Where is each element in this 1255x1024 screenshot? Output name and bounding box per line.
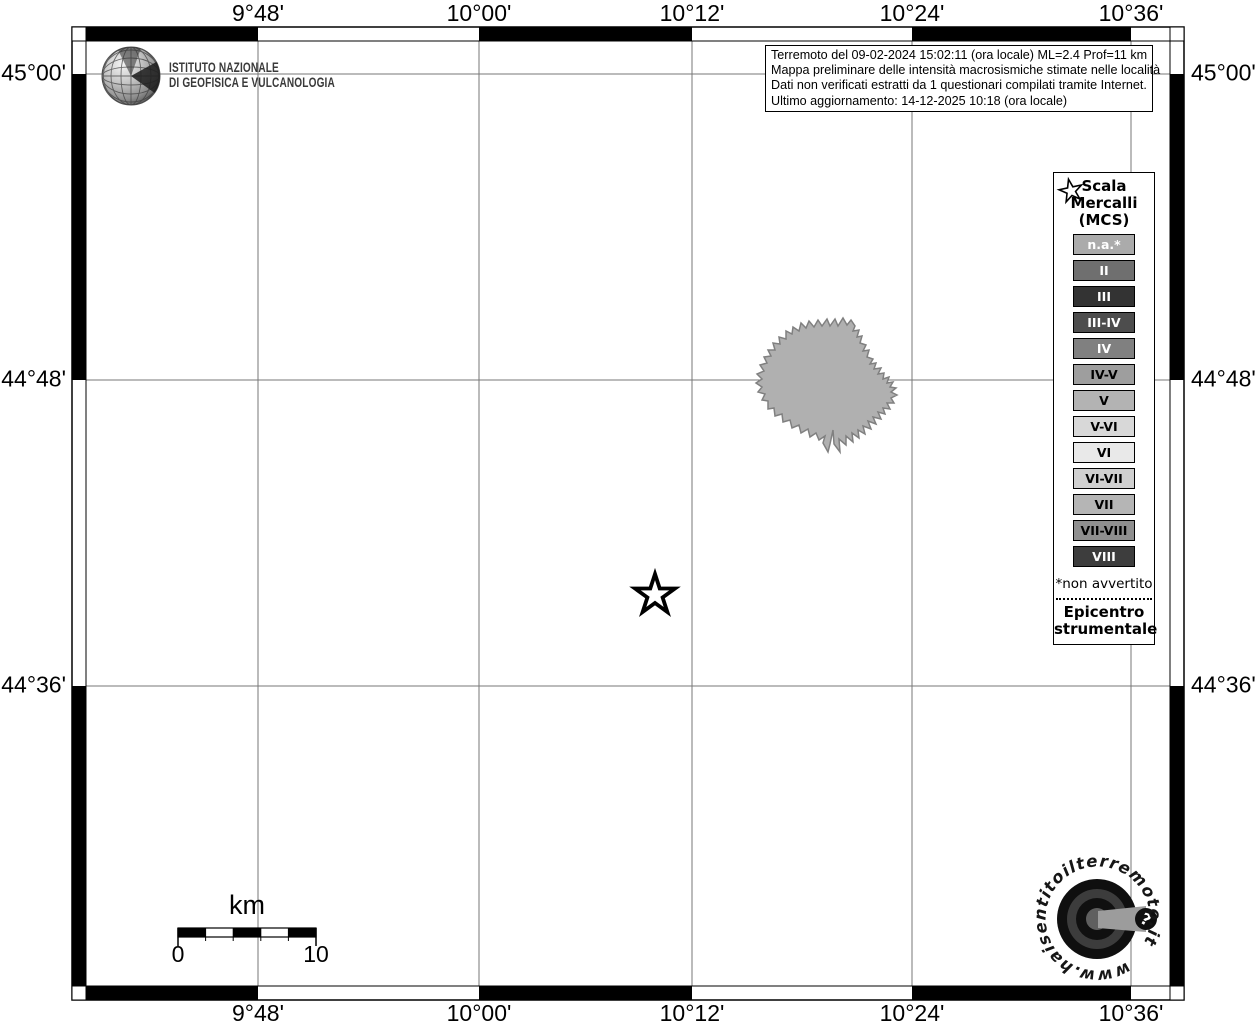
- legend-item-iii: III: [1073, 286, 1135, 307]
- lon-label-bottom-4: 10°24': [880, 1000, 945, 1024]
- earthquake-info-box: Terremoto del 09-02-2024 15:02:11 (ora l…: [765, 45, 1153, 112]
- legend-item-vii-viii: VII-VIII: [1073, 520, 1135, 541]
- legend-item-viii: VIII: [1073, 546, 1135, 567]
- legend-epicenter-line2: strumentale: [1054, 621, 1154, 638]
- lat-label-left-1: 45°00': [0, 59, 66, 86]
- frame-corner: [1170, 986, 1184, 1000]
- legend-item-v-vi: V-VI: [1073, 416, 1135, 437]
- legend-title-line3: (MCS): [1054, 212, 1154, 229]
- lon-label-top-5: 10°36': [1099, 0, 1164, 27]
- mercalli-legend: Scala Mercalli (MCS) n.a.* II III III-IV…: [1053, 172, 1155, 645]
- legend-item-vi: VI: [1073, 442, 1135, 463]
- scale-start-label: 0: [172, 941, 185, 967]
- lon-label-bottom-3: 10°12': [660, 1000, 725, 1024]
- lon-label-top-3: 10°12': [660, 0, 725, 27]
- legend-item-v: V: [1073, 390, 1135, 411]
- frame-corner: [72, 986, 86, 1000]
- lon-label-top-4: 10°24': [880, 0, 945, 27]
- legend-item-iii-iv: III-IV: [1073, 312, 1135, 333]
- frame-corner: [1170, 27, 1184, 41]
- frame-corner: [72, 27, 86, 41]
- lat-label-left-2: 44°48': [0, 365, 66, 392]
- lat-label-right-1: 45°00': [1191, 59, 1255, 86]
- legend-epicenter-line1: Epicentro: [1054, 604, 1154, 621]
- legend-item-na: n.a.*: [1073, 234, 1135, 255]
- lon-label-bottom-1: 9°48': [232, 1000, 284, 1024]
- info-line-updated: Ultimo aggiornamento: 14-12-2025 10:18 (…: [771, 94, 1147, 109]
- scale-bar: km 0 10: [172, 890, 329, 967]
- municipality-polygon: [756, 318, 897, 452]
- lon-label-top-2: 10°00': [447, 0, 512, 27]
- epicenter-star-icon: [635, 574, 675, 612]
- lon-label-bottom-5: 10°36': [1099, 1000, 1164, 1024]
- lat-label-right-2: 44°48': [1191, 365, 1255, 392]
- ingv-wordmark-line2: DI GEOFISICA E VULCANOLOGIA: [169, 75, 335, 90]
- scale-unit-label: km: [229, 890, 265, 920]
- ingv-wordmark: ISTITUTO NAZIONALE DI GEOFISICA E VULCAN…: [169, 60, 335, 89]
- legend-epicenter-label: Epicentro strumentale: [1054, 604, 1154, 638]
- legend-item-ii: II: [1073, 260, 1135, 281]
- legend-item-iv-v: IV-V: [1073, 364, 1135, 385]
- legend-item-iv: IV: [1073, 338, 1135, 359]
- lon-label-top-1: 9°48': [232, 0, 284, 27]
- ingv-globe-icon: [102, 47, 162, 105]
- graticule: [86, 41, 1170, 986]
- lat-label-right-3: 44°36': [1191, 671, 1255, 698]
- ingv-wordmark-line1: ISTITUTO NAZIONALE: [169, 60, 335, 75]
- legend-separator: [1056, 598, 1152, 600]
- legend-item-vii: VII: [1073, 494, 1135, 515]
- haisentito-logo: ? www.haisentitoilterremoto.it: [1030, 851, 1164, 986]
- info-line-map: Mappa preliminare delle intensità macros…: [771, 63, 1147, 78]
- legend-footnote: *non avvertito: [1054, 576, 1154, 592]
- lat-label-left-3: 44°36': [0, 671, 66, 698]
- scale-end-label: 10: [303, 941, 329, 967]
- info-line-data: Dati non verificati estratti da 1 questi…: [771, 78, 1147, 93]
- map-frame: [72, 27, 1184, 1000]
- lon-label-bottom-2: 10°00': [447, 1000, 512, 1024]
- intensity-map-page: km 0 10 ? www.haisentitoilterremoto.it 9…: [0, 0, 1255, 1024]
- info-line-event: Terremoto del 09-02-2024 15:02:11 (ora l…: [771, 48, 1147, 63]
- legend-item-vi-vii: VI-VII: [1073, 468, 1135, 489]
- legend-epicenter-star-icon: [1054, 175, 1088, 207]
